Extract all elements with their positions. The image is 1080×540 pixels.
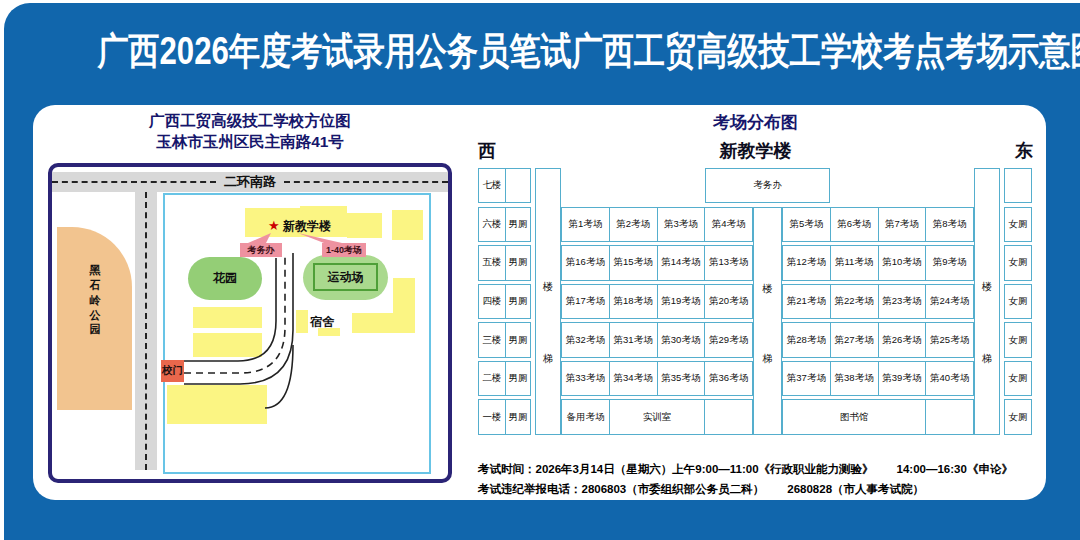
room-cell: 第9考场 (925, 246, 973, 279)
floor-label: 七楼 (479, 169, 506, 202)
womens-toilet-box: 女厕 (1004, 284, 1032, 319)
room-strip: 图书馆 (782, 399, 974, 434)
room-cell: 第38考场 (830, 362, 878, 395)
room-cell: 第11考场 (830, 246, 878, 279)
womens-toilet-box: 女厕 (1004, 245, 1032, 280)
campus-map: 二环南路 黑石岭公园 ★ 新教学 (48, 163, 452, 483)
room-cell: 第28考场 (783, 323, 830, 356)
room-cell: 第17考场 (562, 285, 609, 318)
poster: 广西2026年度考试录用公务员笔试广西工贸高级技工学校考点考场示意图 广西工贸高… (0, 0, 1080, 540)
rooms-range-tag: 1-40考场 (322, 243, 366, 257)
mens-toilet-label: 男厕 (506, 208, 530, 241)
room-strip: 第28考场第27考场第26考场第25考场 (782, 322, 974, 357)
womens-toilet-box: 女厕 (1004, 361, 1032, 396)
room-cell: 第24考场 (925, 285, 973, 318)
room-cell: 备用考场 (562, 400, 609, 433)
stair-column: 楼梯 (753, 207, 782, 435)
room-cell: 第39考场 (878, 362, 926, 395)
floor-label: 五楼 (479, 246, 506, 279)
school-gate: 校门 (161, 360, 184, 382)
stair-char-bottom: 梯 (536, 352, 560, 366)
room-cell: 图书馆 (783, 400, 925, 433)
distribution-table: 七楼六楼男厕第1考场第2考场第3考场第4考场第5考场第6考场第7考场第8考场女厕… (478, 168, 1033, 436)
room-cell: 第5考场 (783, 208, 830, 241)
campus-map-inner: 二环南路 黑石岭公园 ★ 新教学 (52, 167, 448, 479)
womens-toilet-box: 女厕 (1004, 399, 1032, 434)
floor-label: 六楼 (479, 208, 506, 241)
floor-label: 一楼 (479, 400, 506, 433)
room-cell: 第33考场 (562, 362, 609, 395)
room-cell: 第7考场 (878, 208, 926, 241)
vertical-road (135, 192, 157, 470)
womens-toilet-box (1004, 168, 1032, 203)
room-cell: 第26考场 (878, 323, 926, 356)
mens-toilet-label: 男厕 (506, 362, 530, 395)
vertical-road-dash (145, 192, 147, 470)
room-strip: 第12考场第11考场第10考场第9考场 (782, 245, 974, 280)
rooms-pointer-wedge (298, 233, 342, 243)
ring-road-label: 二环南路 (224, 173, 276, 191)
room-cell: 第35考场 (657, 362, 705, 395)
floor-label: 四楼 (479, 285, 506, 318)
map-title-line1: 广西工贸高级技工学校方位图 (33, 111, 467, 132)
office-pointer-wedge (248, 233, 271, 243)
content-panel: 广西工贸高级技工学校方位图 玉林市玉州区民主南路41号 二环南路 黑石岭公园 (33, 105, 1046, 500)
stair-char-bottom: 梯 (754, 352, 781, 366)
floor-toilet-box: 五楼男厕 (478, 245, 531, 280)
room-cell: 第3考场 (657, 208, 705, 241)
womens-toilet-box: 女厕 (1004, 322, 1032, 357)
road-dash-right (284, 181, 448, 183)
room-cell: 第13考场 (704, 246, 752, 279)
floor-toilet-box: 三楼男厕 (478, 322, 531, 357)
exam-time-line: 考试时间：2026年3月14日（星期六）上午9:00—11:00《行政职业能力测… (478, 462, 1013, 477)
mens-toilet-label: 男厕 (506, 400, 530, 433)
floor-label: 三楼 (479, 323, 506, 356)
room-cell: 第12考场 (783, 246, 830, 279)
room-cell: 第29考场 (704, 323, 752, 356)
drive-centerline (184, 253, 285, 373)
mens-toilet-label: 男厕 (506, 323, 530, 356)
mens-toilet-label: 男厕 (506, 246, 530, 279)
stair-char-bottom: 梯 (975, 352, 999, 366)
room-strip: 第37考场第38考场第39考场第40考场 (782, 361, 974, 396)
campus-area: ★ 新教学楼 考务办 1-40考场 花园 (163, 193, 431, 474)
stair-column: 楼梯 (974, 168, 1000, 435)
park-label: 黑石岭公园 (88, 263, 102, 337)
stair-column: 楼梯 (535, 168, 561, 435)
room-strip: 第5考场第6考场第7考场第8考场 (782, 207, 974, 242)
floor-label: 二楼 (479, 362, 506, 395)
room-cell: 第14考场 (657, 246, 705, 279)
room-cell: 第31考场 (609, 323, 657, 356)
room-cell: 第37考场 (783, 362, 830, 395)
floor-toilet-box: 一楼男厕 (478, 399, 531, 434)
ring-road-south: 二环南路 (52, 172, 448, 192)
room-strip: 第32考场第31考场第30考场第29考场 (561, 322, 753, 357)
room-cell: 第32考场 (562, 323, 609, 356)
room-cell: 第15考场 (609, 246, 657, 279)
exam-office-tag: 考务办 (240, 243, 282, 257)
room-cell: 第2考场 (609, 208, 657, 241)
building-name: 新教学楼 (478, 139, 1033, 163)
stair-char-top: 楼 (975, 280, 999, 294)
exam-office-box: 考务办 (705, 168, 830, 203)
room-cell: 第1考场 (562, 208, 609, 241)
distribution-title: 考场分布图 (478, 111, 1033, 134)
drive-edge-left (184, 258, 276, 361)
room-strip: 第21考场第22考场第23考场第24考场 (782, 284, 974, 319)
road-dash-left (52, 181, 216, 183)
floor-toilet-box: 七楼 (478, 168, 531, 203)
room-cell: 第30考场 (657, 323, 705, 356)
room-strip: 第17考场第18考场第19考场第20考场 (561, 284, 753, 319)
mens-toilet-label (506, 169, 530, 202)
floor-toilet-box: 四楼男厕 (478, 284, 531, 319)
room-cell: 第40考场 (925, 362, 973, 395)
room-cell: 第18考场 (609, 285, 657, 318)
room-cell: 第36考场 (704, 362, 752, 395)
floor-toilet-box: 六楼男厕 (478, 207, 531, 242)
room-strip: 第33考场第34考场第35考场第36考场 (561, 361, 753, 396)
room-cell: 第21考场 (783, 285, 830, 318)
room-cell: 第4考场 (704, 208, 752, 241)
room-cell: 第22考场 (830, 285, 878, 318)
room-cell: 第19考场 (657, 285, 705, 318)
room-cell: 实训室 (609, 400, 704, 433)
room-cell (704, 400, 752, 433)
report-phone-line: 考试违纪举报电话：2806803（市委组织部公务员二科） 2680828（市人事… (478, 482, 924, 497)
room-cell: 第6考场 (830, 208, 878, 241)
room-cell: 第27考场 (830, 323, 878, 356)
room-cell (925, 400, 973, 433)
stair-char-top: 楼 (754, 282, 781, 296)
stair-char-top: 楼 (536, 280, 560, 294)
mens-toilet-label: 男厕 (506, 285, 530, 318)
room-strip: 第16考场第15考场第14考场第13考场 (561, 245, 753, 280)
map-title-line2: 玉林市玉州区民主南路41号 (33, 132, 467, 153)
room-cell: 第16考场 (562, 246, 609, 279)
map-section: 广西工贸高级技工学校方位图 玉林市玉州区民主南路41号 二环南路 黑石岭公园 (33, 105, 467, 500)
womens-toilet-box: 女厕 (1004, 207, 1032, 242)
room-strip: 备用考场实训室 (561, 399, 753, 434)
room-cell: 第8考场 (925, 208, 973, 241)
distribution-section: 考场分布图 西 新教学楼 东 七楼六楼男厕第1考场第2考场第3考场第4考场第5考… (478, 105, 1036, 500)
room-cell: 第34考场 (609, 362, 657, 395)
room-strip: 第1考场第2考场第3考场第4考场 (561, 207, 753, 242)
poster-title: 广西2026年度考试录用公务员笔试广西工贸高级技工学校考点考场示意图 (97, 26, 983, 77)
direction-east: 东 (1015, 139, 1033, 163)
room-cell: 第20考场 (704, 285, 752, 318)
room-cell: 第10考场 (878, 246, 926, 279)
room-cell: 第25考场 (925, 323, 973, 356)
room-cell: 第23考场 (878, 285, 926, 318)
campus-path-svg (165, 195, 429, 472)
floor-toilet-box: 二楼男厕 (478, 361, 531, 396)
